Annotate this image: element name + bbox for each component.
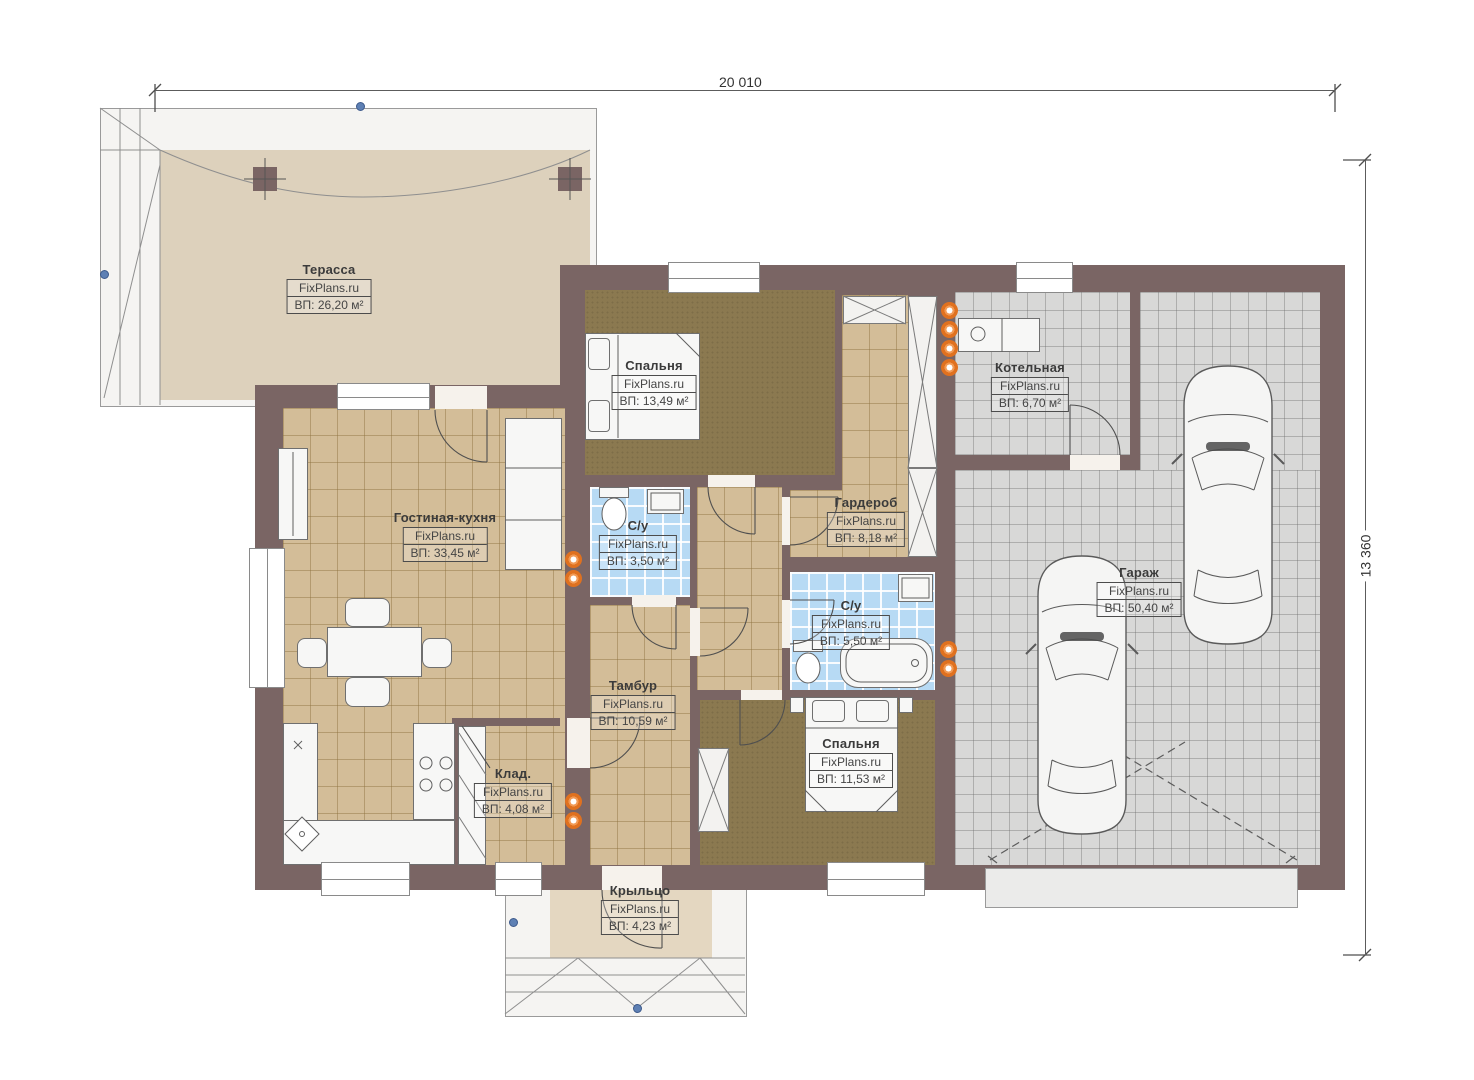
room-label-storage: Клад. FixPlans.ruВП: 4,08 м² — [474, 766, 552, 818]
brand-text: FixPlans.ru — [810, 754, 892, 770]
tv-unit — [278, 448, 308, 540]
wardrobe-cabinet-right — [908, 296, 937, 468]
room-label-vestibule: Тамбур FixPlans.ruВП: 10,59 м² — [591, 678, 676, 730]
brand-text: FixPlans.ru — [992, 378, 1068, 394]
room-name: Крыльцо — [601, 883, 679, 898]
room-name: С/у — [812, 598, 890, 613]
dimension-line-top — [155, 90, 1335, 91]
brand-text: FixPlans.ru — [613, 376, 696, 392]
room-label-bedroom-2: Спальня FixPlans.ruВП: 11,53 м² — [809, 736, 893, 788]
chair — [422, 638, 452, 668]
radiator-dot — [940, 641, 957, 658]
room-name: Клад. — [474, 766, 552, 781]
terrace-floor — [160, 150, 590, 400]
storage-wall-top — [452, 718, 560, 726]
room-label-bathroom-2: С/у FixPlans.ruВП: 5,50 м² — [812, 598, 890, 650]
area-text: ВП: 11,53 м² — [810, 770, 892, 787]
door-opening-living — [567, 718, 590, 768]
kitchen-counter-bottom — [283, 820, 455, 865]
dining-table — [327, 627, 422, 677]
radiator-dot — [565, 551, 582, 568]
room-label-bathroom-1: С/у FixPlans.ruВП: 3,50 м² — [599, 518, 677, 570]
room-label-terrace: Терасса FixPlans.ruВП: 26,20 м² — [287, 262, 372, 314]
door-opening-bathroom-1 — [632, 595, 676, 607]
area-text: ВП: 50,40 м² — [1098, 599, 1181, 616]
room-name: Спальня — [612, 358, 697, 373]
chair — [297, 638, 327, 668]
chair — [345, 598, 390, 627]
window — [1016, 262, 1073, 293]
hall-floor — [697, 487, 782, 690]
garage-floor-main — [955, 470, 1320, 865]
window — [495, 862, 542, 896]
window — [337, 383, 430, 410]
area-text: ВП: 4,23 м² — [602, 917, 678, 934]
room-name: Гардероб — [827, 495, 905, 510]
roof-node-dot — [633, 1004, 642, 1013]
brand-text: FixPlans.ru — [813, 616, 889, 632]
room-name: Спальня — [809, 736, 893, 751]
boiler-sink-unit — [958, 318, 1040, 352]
bathroom-1-sink — [647, 489, 684, 514]
pillow — [588, 400, 610, 432]
sofa — [505, 418, 562, 570]
wardrobe-cabinet-right — [908, 468, 937, 557]
window — [249, 548, 285, 688]
room-name: Гостиная-кухня — [394, 510, 496, 525]
brand-text: FixPlans.ru — [404, 528, 487, 544]
radiator-dot — [941, 321, 958, 338]
brand-text: FixPlans.ru — [602, 901, 678, 917]
radiator-dot — [565, 570, 582, 587]
pillow — [812, 700, 845, 722]
room-label-garage: Гараж FixPlans.ruВП: 50,40 м² — [1097, 565, 1182, 617]
door-opening-hall — [690, 608, 700, 656]
door-opening-boiler — [1070, 455, 1120, 470]
door-opening-bedroom-1 — [708, 475, 755, 487]
room-label-living-kitchen: Гостиная-кухня FixPlans.ruВП: 33,45 м² — [394, 510, 496, 562]
radiator-dot — [565, 793, 582, 810]
room-name: Гараж — [1097, 565, 1182, 580]
brand-text: FixPlans.ru — [1098, 583, 1181, 599]
radiator-dot — [941, 302, 958, 319]
area-text: ВП: 13,49 м² — [613, 392, 696, 409]
brand-text: FixPlans.ru — [475, 784, 551, 800]
pillow — [856, 700, 889, 722]
brand-text: FixPlans.ru — [288, 280, 371, 296]
area-text: ВП: 3,50 м² — [600, 552, 676, 569]
radiator-dot — [941, 359, 958, 376]
pillow — [588, 338, 610, 370]
brand-text: FixPlans.ru — [600, 536, 676, 552]
radiator-dot — [940, 660, 957, 677]
door-opening-terrace — [435, 386, 487, 409]
window — [827, 862, 925, 896]
room-label-wardrobe: Гардероб FixPlans.ruВП: 8,18 м² — [827, 495, 905, 547]
brand-text: FixPlans.ru — [592, 696, 675, 712]
bathroom-2-sink — [898, 574, 933, 602]
area-text: ВП: 8,18 м² — [828, 529, 904, 546]
room-label-bedroom-1: Спальня FixPlans.ruВП: 13,49 м² — [612, 358, 697, 410]
bedroom-2-cabinet — [698, 748, 729, 832]
roof-node-dot — [509, 918, 518, 927]
area-text: ВП: 33,45 м² — [404, 544, 487, 561]
garage-gate — [985, 868, 1298, 908]
toilet-tank — [599, 487, 629, 498]
dimension-top-value: 20 010 — [715, 74, 766, 90]
room-label-boiler-room: Котельная FixPlans.ruВП: 6,70 м² — [991, 360, 1069, 412]
room-label-porch: Крыльцо FixPlans.ruВП: 4,23 м² — [601, 883, 679, 935]
area-text: ВП: 26,20 м² — [288, 296, 371, 313]
window — [321, 862, 410, 896]
room-name: Котельная — [991, 360, 1069, 375]
area-text: ВП: 6,70 м² — [992, 394, 1068, 411]
roof-node-dot — [100, 270, 109, 279]
room-name: Тамбур — [591, 678, 676, 693]
window — [668, 262, 760, 293]
brand-text: FixPlans.ru — [828, 513, 904, 529]
radiator-dot — [941, 340, 958, 357]
area-text: ВП: 5,50 м² — [813, 632, 889, 649]
nightstand — [790, 697, 804, 713]
door-opening-bedroom-2 — [741, 690, 782, 700]
door-opening-bathroom-2 — [782, 600, 790, 648]
roof-node-dot — [356, 102, 365, 111]
room-name: С/у — [599, 518, 677, 533]
area-text: ВП: 10,59 м² — [592, 712, 675, 729]
radiator-dot — [565, 812, 582, 829]
nightstand — [899, 697, 913, 713]
door-opening-wardrobe — [782, 497, 790, 545]
area-text: ВП: 4,08 м² — [475, 800, 551, 817]
wardrobe-cabinet-top — [843, 296, 906, 324]
chair — [345, 677, 390, 707]
kitchen-counter-stove — [413, 723, 455, 820]
dimension-right-value: 13 360 — [1357, 531, 1373, 582]
floor-plan-page: { "title": "Floor plan", "dimensions": {… — [0, 0, 1474, 1080]
vestibule-floor — [590, 605, 690, 865]
room-name: Терасса — [287, 262, 372, 277]
